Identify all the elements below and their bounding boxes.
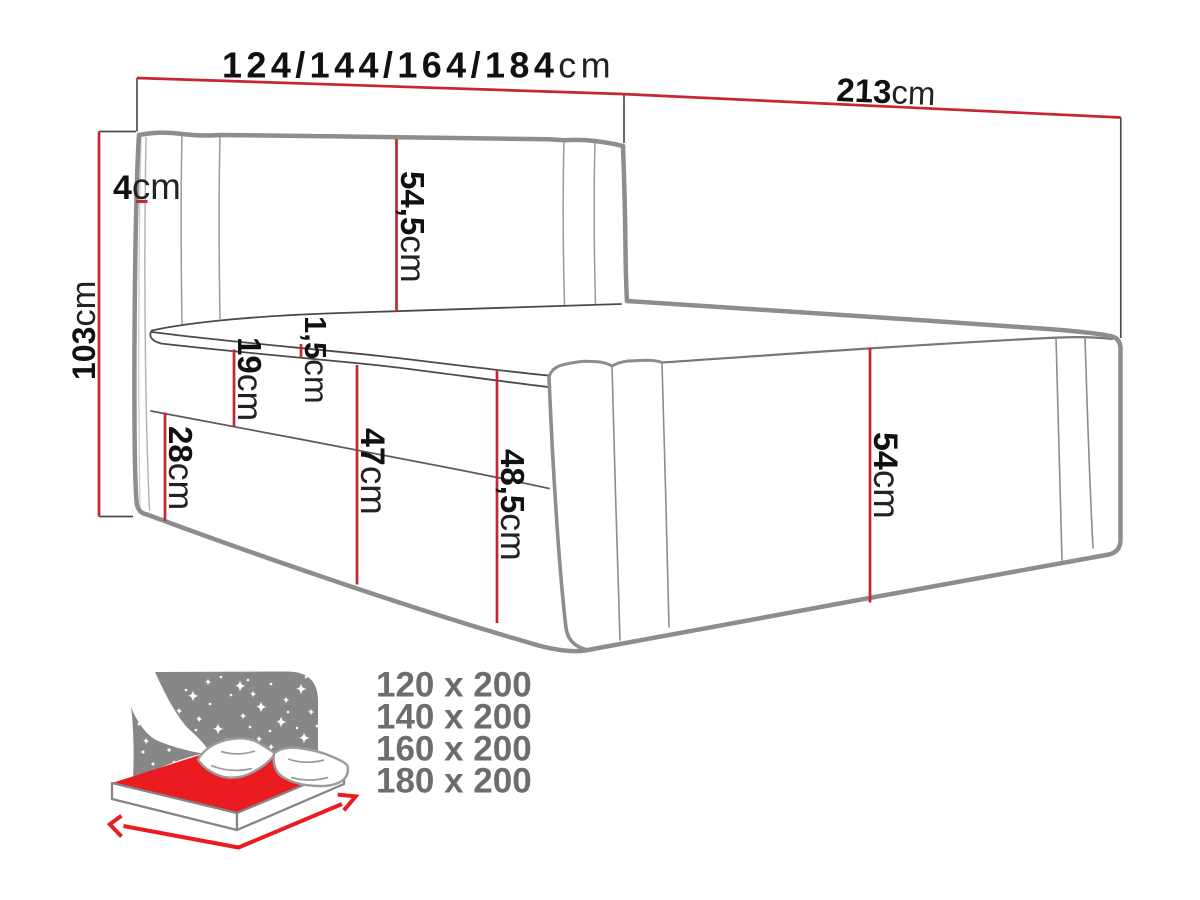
svg-text:4cm: 4cm — [113, 166, 181, 207]
svg-text:19cm: 19cm — [230, 337, 270, 421]
svg-text:103cm: 103cm — [65, 281, 103, 380]
svg-text:28cm: 28cm — [161, 426, 201, 510]
svg-text:213cm: 213cm — [836, 71, 937, 112]
svg-text:1,5cm: 1,5cm — [297, 316, 334, 404]
svg-text:124/144/164/184cm: 124/144/164/184cm — [222, 45, 615, 86]
svg-text:47cm: 47cm — [353, 428, 394, 515]
svg-text:180 x 200: 180 x 200 — [376, 762, 532, 801]
svg-text:48,5cm: 48,5cm — [493, 449, 533, 561]
svg-text:54,5cm: 54,5cm — [393, 171, 433, 283]
svg-text:54cm: 54cm — [866, 432, 907, 519]
